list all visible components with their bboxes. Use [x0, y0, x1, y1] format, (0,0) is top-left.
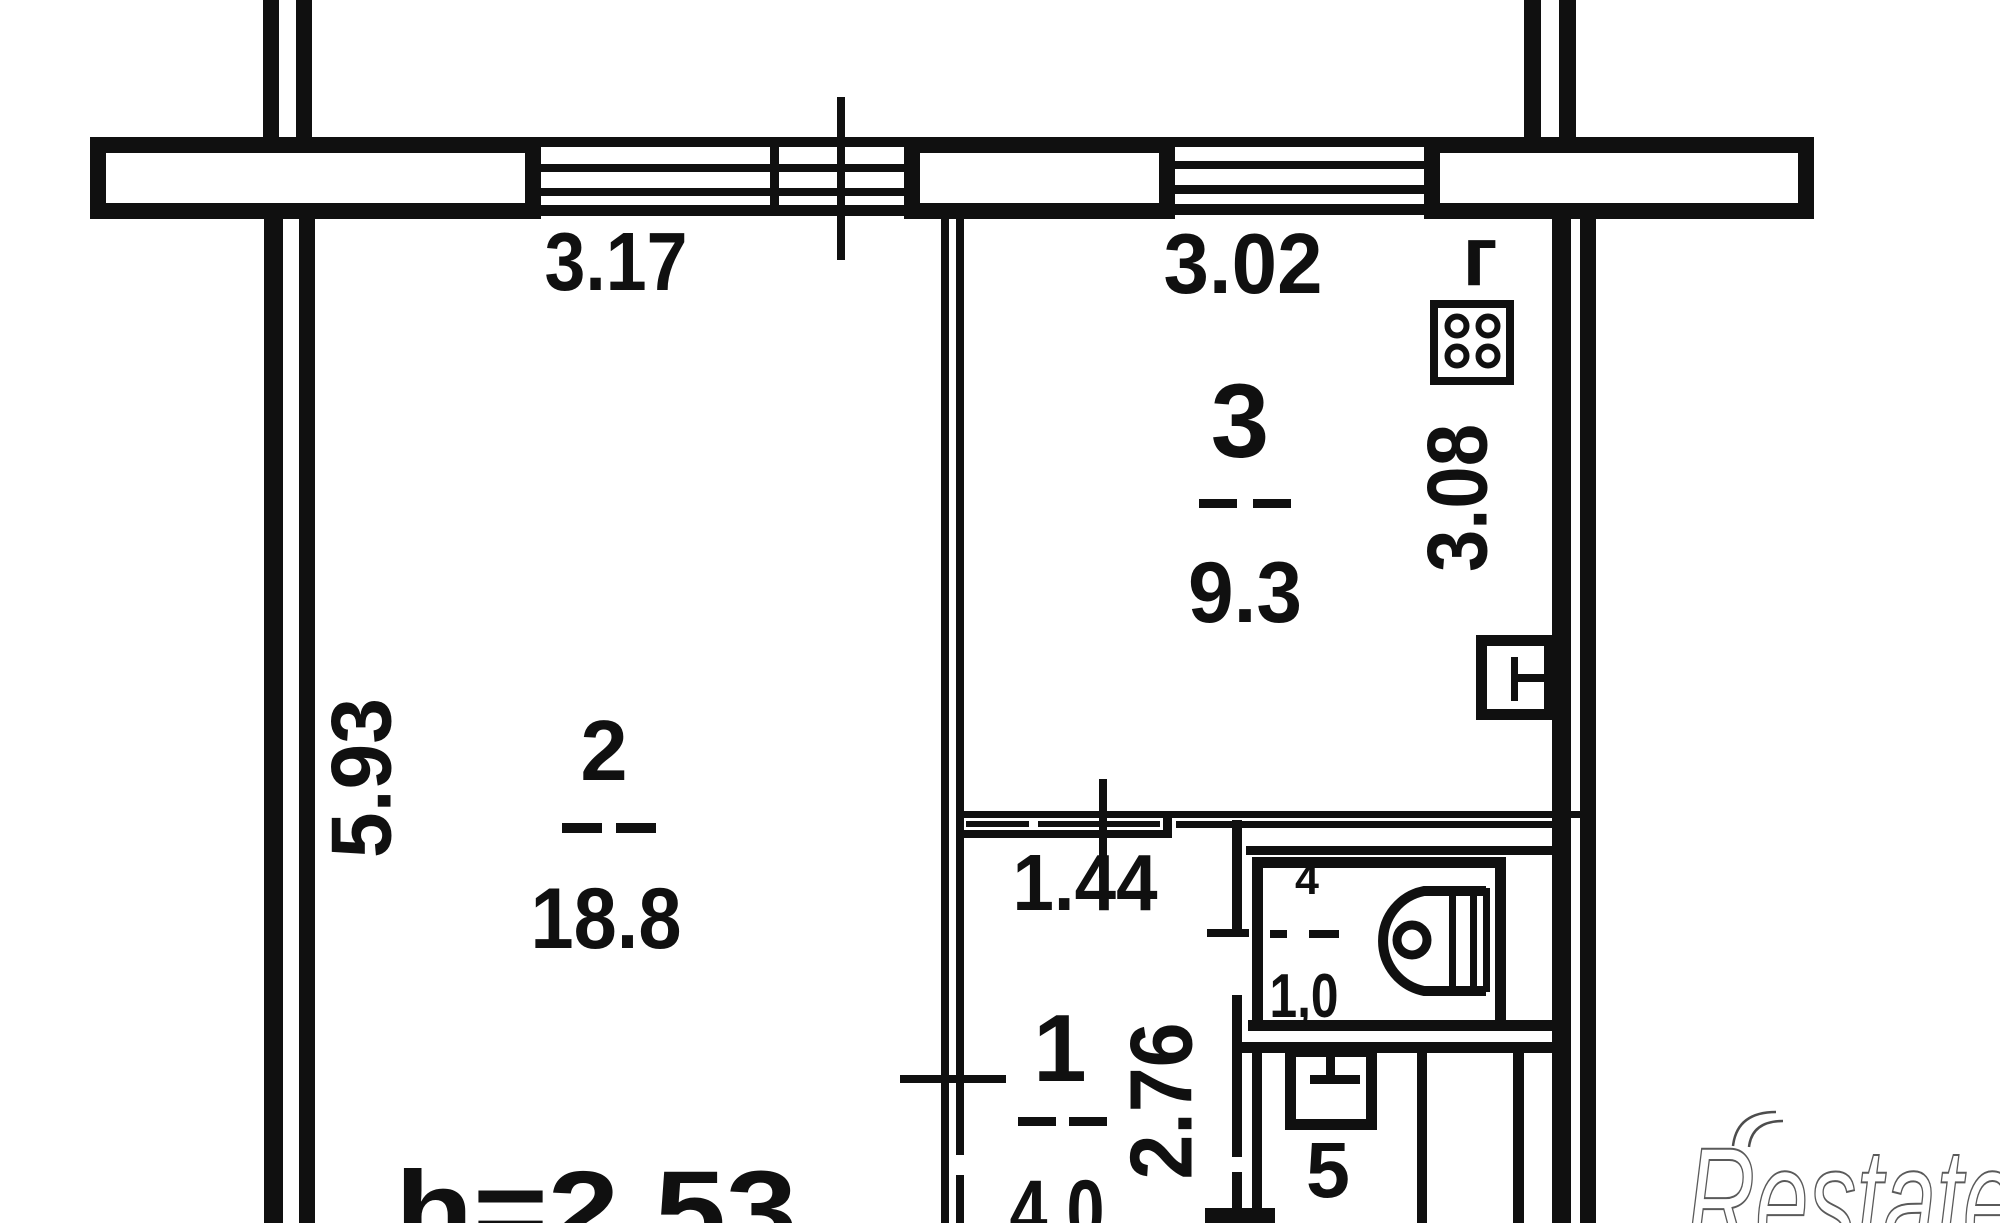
- svg-text:9.3: 9.3: [1188, 545, 1302, 641]
- svg-text:г: г: [1462, 209, 1497, 304]
- svg-text:2.76: 2.76: [1112, 1023, 1211, 1180]
- svg-text:5.93: 5.93: [315, 698, 410, 858]
- svg-text:18.8: 18.8: [531, 871, 682, 967]
- svg-text:1: 1: [1033, 995, 1086, 1102]
- svg-text:3.02: 3.02: [1164, 217, 1323, 312]
- svg-text:h=2.53: h=2.53: [395, 1149, 797, 1223]
- svg-text:Restate: Restate: [1686, 1116, 2000, 1223]
- svg-text:1,0: 1,0: [1270, 962, 1339, 1031]
- svg-text:5: 5: [1306, 1125, 1350, 1214]
- svg-text:4.0: 4.0: [1010, 1163, 1105, 1223]
- svg-text:1.44: 1.44: [1013, 838, 1158, 927]
- svg-text:3.17: 3.17: [545, 215, 688, 308]
- svg-text:2: 2: [580, 704, 627, 799]
- svg-text:4: 4: [1295, 856, 1319, 904]
- svg-text:3.08: 3.08: [1411, 424, 1506, 572]
- svg-text:3: 3: [1211, 363, 1269, 480]
